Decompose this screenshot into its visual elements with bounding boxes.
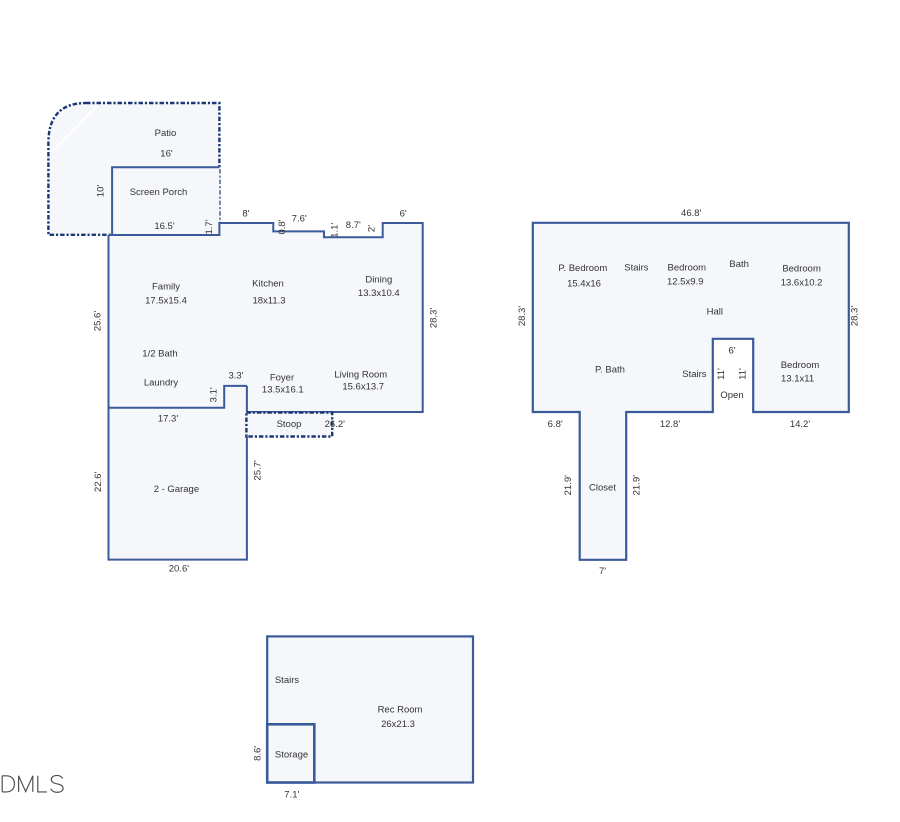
svg-text:Foyer: Foyer xyxy=(270,373,294,384)
svg-text:Dining: Dining xyxy=(365,275,392,286)
svg-text:Closet: Closet xyxy=(589,483,616,494)
svg-text:7.1': 7.1' xyxy=(284,789,299,800)
svg-text:26x21.3: 26x21.3 xyxy=(381,719,415,730)
svg-text:17.5x15.4: 17.5x15.4 xyxy=(145,296,187,307)
svg-text:8.6': 8.6' xyxy=(253,746,264,761)
svg-text:Stairs: Stairs xyxy=(624,263,649,274)
svg-text:10': 10' xyxy=(96,185,107,198)
svg-text:7.6': 7.6' xyxy=(292,214,307,225)
svg-text:Living Room: Living Room xyxy=(334,370,387,381)
svg-text:16': 16' xyxy=(160,149,173,160)
svg-text:Bedroom: Bedroom xyxy=(781,360,820,371)
svg-text:15.4x16: 15.4x16 xyxy=(567,279,601,290)
svg-text:7': 7' xyxy=(599,566,606,577)
svg-text:1/2 Bath: 1/2 Bath xyxy=(142,349,177,360)
svg-text:13.6x10.2: 13.6x10.2 xyxy=(781,277,823,288)
svg-text:11': 11' xyxy=(737,368,748,380)
svg-text:25.6': 25.6' xyxy=(93,311,104,331)
svg-text:20.6': 20.6' xyxy=(169,564,189,575)
svg-text:16.5': 16.5' xyxy=(154,221,174,232)
svg-text:Patio: Patio xyxy=(155,128,177,139)
svg-text:3.1': 3.1' xyxy=(209,387,220,402)
svg-text:P. Bath: P. Bath xyxy=(595,365,625,376)
svg-text:21.9': 21.9' xyxy=(631,475,642,495)
svg-text:11': 11' xyxy=(716,368,727,380)
svg-text:13.5x16.1: 13.5x16.1 xyxy=(262,385,304,396)
svg-text:28.3': 28.3' xyxy=(429,308,440,328)
svg-text:2 - Garage: 2 - Garage xyxy=(154,484,199,495)
svg-text:3.3': 3.3' xyxy=(228,371,243,382)
svg-text:Stairs: Stairs xyxy=(682,369,707,380)
svg-text:46.8': 46.8' xyxy=(681,208,701,219)
svg-text:0.8': 0.8' xyxy=(277,219,288,234)
svg-text:6': 6' xyxy=(400,209,407,220)
svg-text:Bedroom: Bedroom xyxy=(668,263,707,274)
svg-text:Open: Open xyxy=(720,390,743,401)
svg-text:1.1': 1.1' xyxy=(330,223,341,238)
svg-text:8.7': 8.7' xyxy=(346,220,361,231)
svg-text:8': 8' xyxy=(242,209,249,220)
svg-text:Laundry: Laundry xyxy=(144,378,179,389)
svg-text:15.6x13.7: 15.6x13.7 xyxy=(342,382,384,393)
svg-text:28.3': 28.3' xyxy=(517,306,528,326)
svg-text:Screen Porch: Screen Porch xyxy=(130,187,188,198)
svg-text:Storage: Storage xyxy=(275,750,308,761)
svg-text:Bedroom: Bedroom xyxy=(782,264,821,275)
svg-text:12.5x9.9: 12.5x9.9 xyxy=(667,277,703,288)
svg-text:Stoop: Stoop xyxy=(277,419,302,430)
svg-text:Kitchen: Kitchen xyxy=(252,279,284,290)
svg-text:26.2': 26.2' xyxy=(325,419,345,430)
svg-text:2': 2' xyxy=(367,225,378,232)
svg-text:17.3': 17.3' xyxy=(158,414,178,425)
svg-text:1.7': 1.7' xyxy=(204,219,215,234)
svg-text:14.2': 14.2' xyxy=(790,419,810,430)
svg-text:Rec Room: Rec Room xyxy=(378,705,423,716)
svg-text:12.8': 12.8' xyxy=(660,419,680,430)
svg-text:6.8': 6.8' xyxy=(548,419,563,430)
svg-text:28.3': 28.3' xyxy=(850,306,861,326)
svg-text:P. Bedroom: P. Bedroom xyxy=(558,263,607,274)
svg-text:25.7': 25.7' xyxy=(253,460,264,480)
svg-text:6': 6' xyxy=(728,346,735,357)
svg-text:Hall: Hall xyxy=(707,307,723,318)
svg-text:13.3x10.4: 13.3x10.4 xyxy=(358,288,400,299)
svg-text:18x11.3: 18x11.3 xyxy=(252,296,285,307)
svg-text:Bath: Bath xyxy=(729,259,749,270)
svg-text:13.1x11: 13.1x11 xyxy=(781,374,814,385)
svg-text:Family: Family xyxy=(152,282,180,293)
svg-text:Stairs: Stairs xyxy=(275,675,300,686)
svg-text:21.9': 21.9' xyxy=(563,475,574,495)
svg-text:22.6': 22.6' xyxy=(93,471,104,491)
